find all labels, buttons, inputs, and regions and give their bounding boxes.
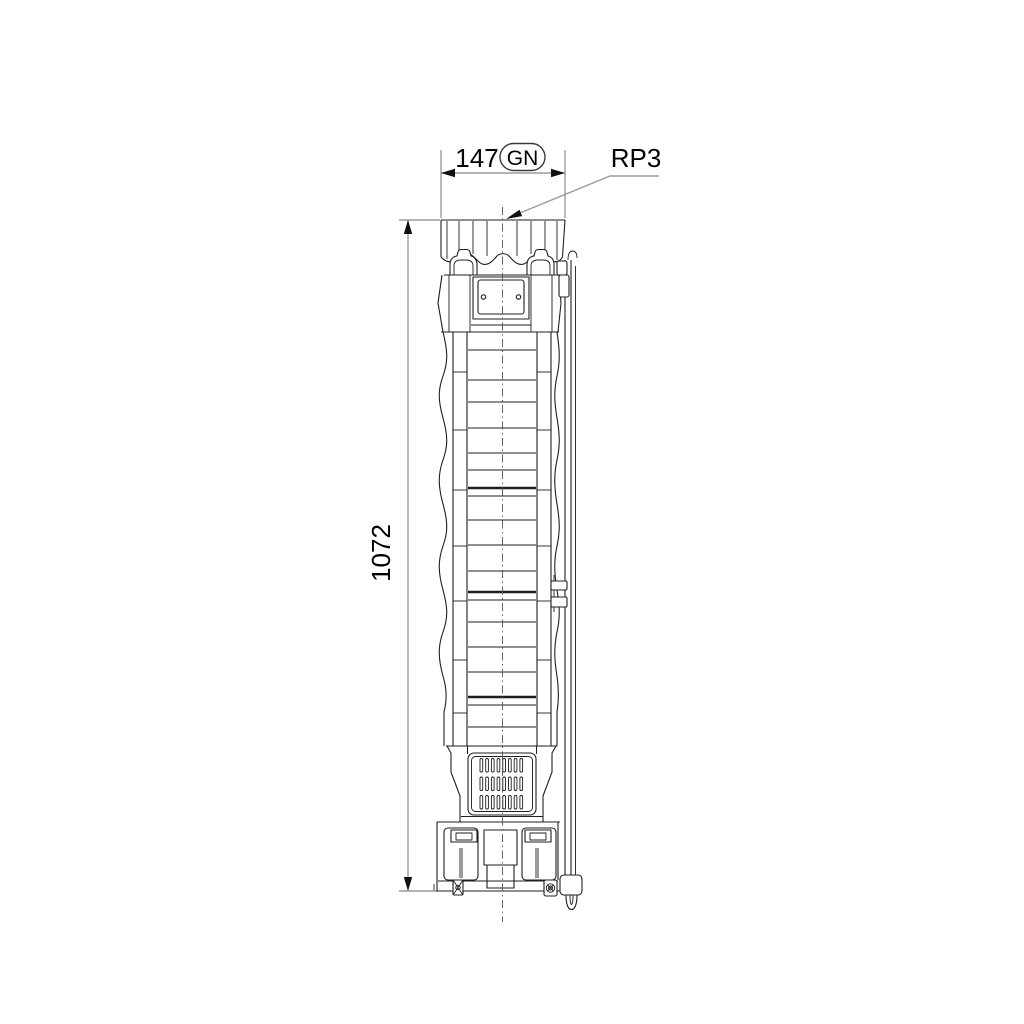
- nameplate: [478, 280, 524, 314]
- width-dimension-value: 147: [455, 143, 498, 173]
- width-dimension: 147 GN: [441, 143, 565, 218]
- thread-size-label: RP3: [611, 143, 662, 173]
- dim-arrow-up: [404, 220, 412, 234]
- gn-variant-badge-label: GN: [507, 147, 539, 170]
- cable-clamp-top: [557, 251, 577, 297]
- cable-guard-end: [560, 875, 582, 910]
- drawing-canvas: 147 GN 1072 RP3: [0, 0, 1024, 1024]
- dim-arrow-right: [551, 169, 565, 177]
- suction-strainer: [447, 746, 556, 822]
- discharge-section: [438, 275, 561, 332]
- pump-stages: [439, 332, 559, 746]
- height-dimension-value: 1072: [366, 524, 396, 582]
- pump-drawing: [434, 207, 582, 922]
- motor-section: [434, 822, 572, 896]
- bolt-right: [544, 880, 557, 896]
- leader-arrowhead: [506, 210, 522, 219]
- dim-arrow-left: [441, 169, 455, 177]
- bolt-left: [453, 880, 463, 895]
- height-dimension: 1072: [366, 220, 440, 891]
- pump-technical-drawing: 147 GN 1072 RP3: [0, 0, 1024, 1024]
- dim-arrow-down: [404, 877, 412, 891]
